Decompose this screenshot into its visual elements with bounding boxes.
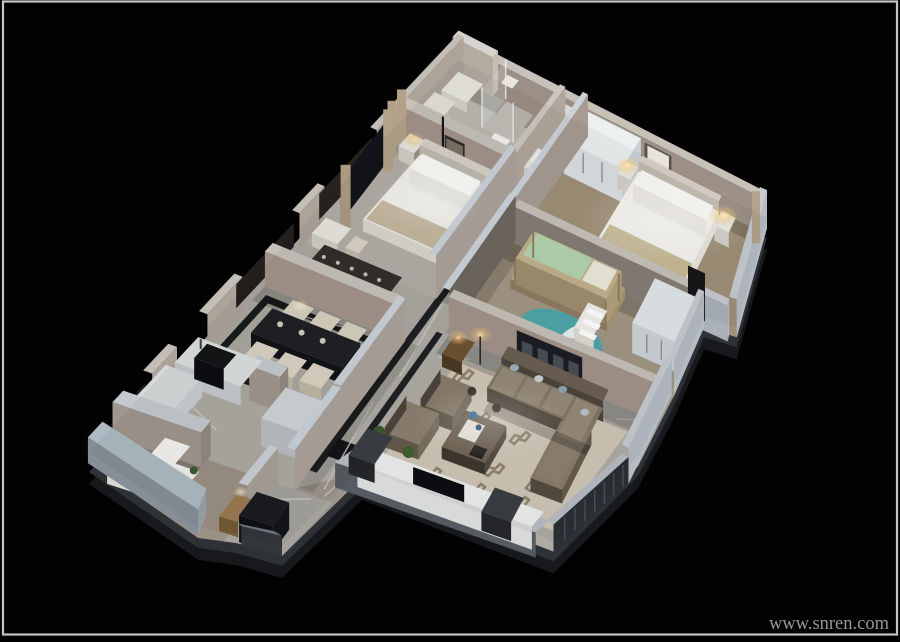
svg-text:www.snren.com: www.snren.com [769, 614, 890, 634]
